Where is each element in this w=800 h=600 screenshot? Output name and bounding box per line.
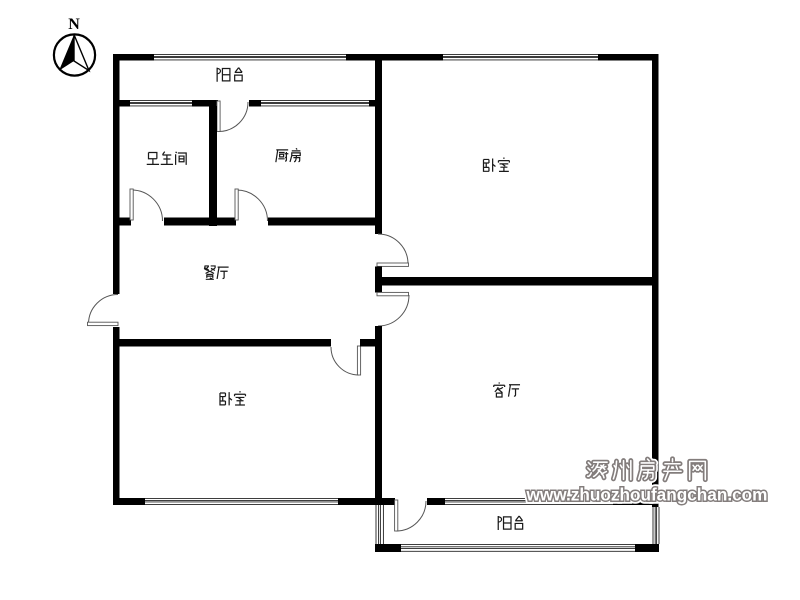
svg-text:www.zhuozhoufangchan.com: www.zhuozhoufangchan.com: [526, 485, 768, 505]
svg-text:N: N: [68, 16, 80, 33]
